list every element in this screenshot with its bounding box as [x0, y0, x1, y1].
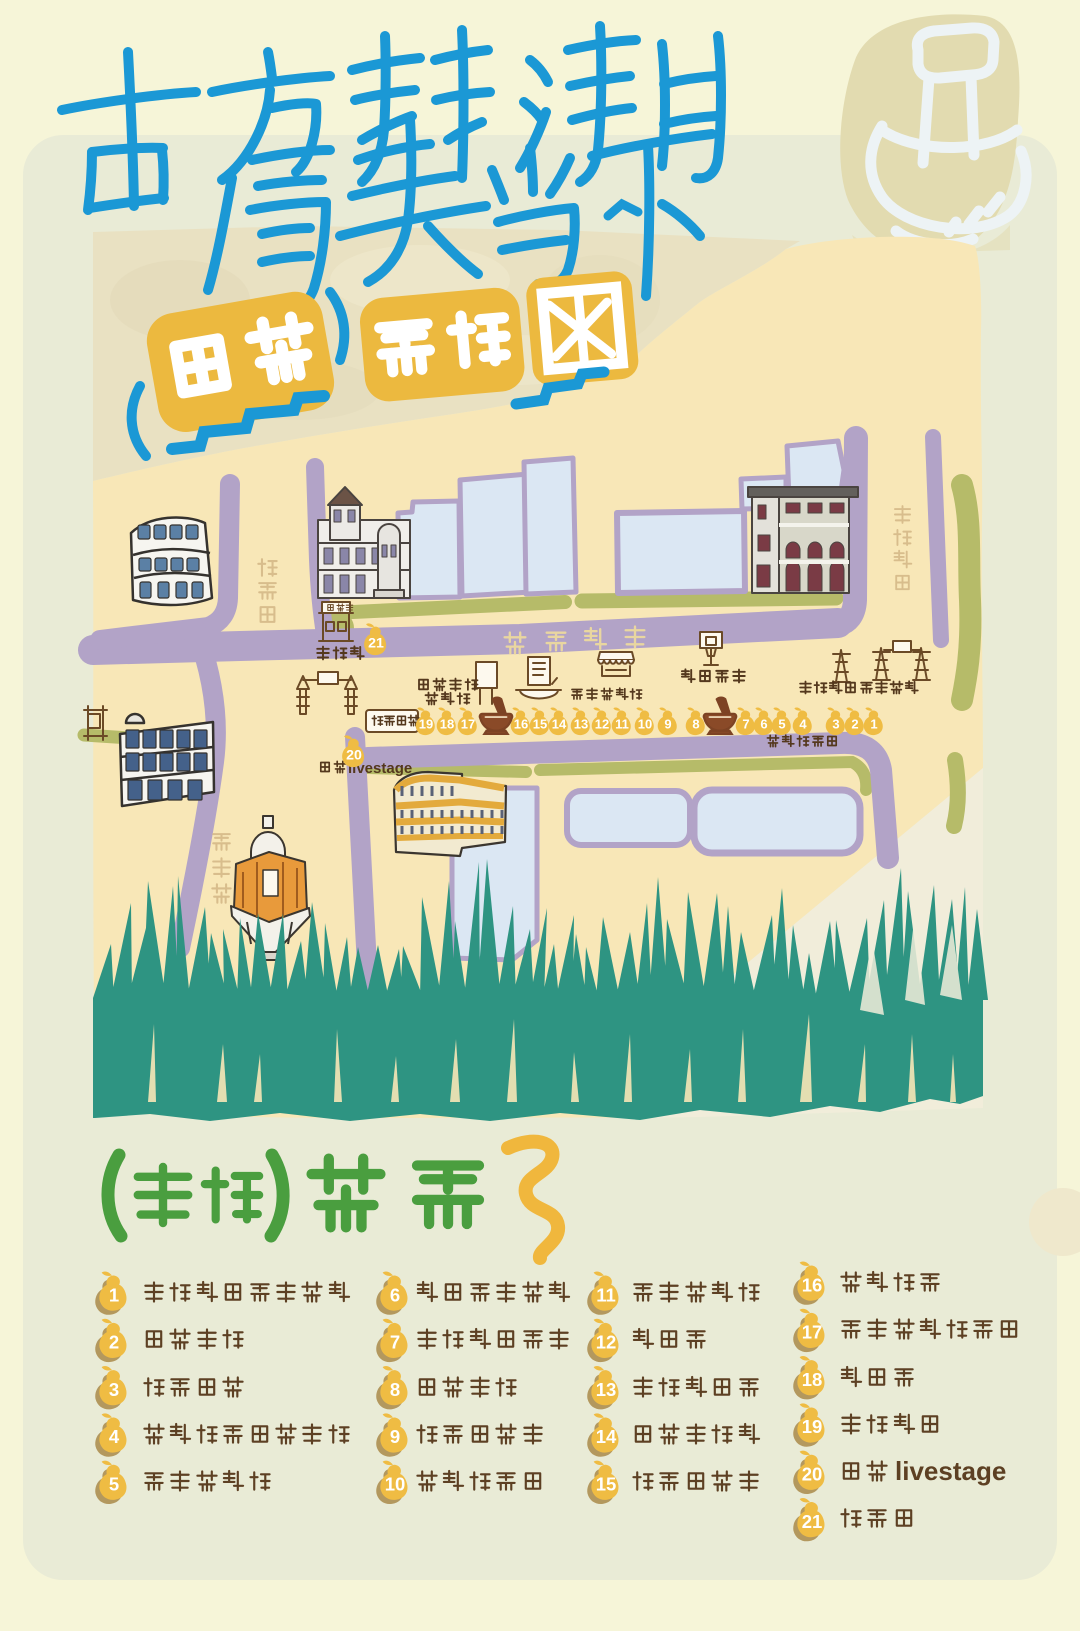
svg-text:17: 17 — [802, 1322, 823, 1343]
svg-text:16: 16 — [802, 1274, 823, 1295]
svg-text:10: 10 — [385, 1473, 406, 1494]
svg-text:13: 13 — [574, 716, 588, 731]
svg-text:livestage: livestage — [895, 1456, 1006, 1486]
svg-text:4: 4 — [799, 716, 807, 731]
svg-text:20: 20 — [346, 747, 362, 763]
svg-text:9: 9 — [664, 716, 671, 731]
svg-text:6: 6 — [390, 1284, 400, 1305]
svg-text:11: 11 — [615, 716, 629, 731]
svg-text:12: 12 — [595, 716, 609, 731]
svg-text:8: 8 — [390, 1379, 400, 1400]
svg-text:6: 6 — [760, 716, 767, 731]
svg-text:7: 7 — [390, 1332, 400, 1353]
svg-text:9: 9 — [390, 1426, 400, 1447]
svg-text:8: 8 — [692, 716, 699, 731]
svg-text:14: 14 — [596, 1426, 617, 1447]
svg-text:1: 1 — [870, 716, 877, 731]
svg-text:14: 14 — [552, 716, 567, 731]
svg-text:15: 15 — [533, 716, 547, 731]
svg-text:5: 5 — [778, 716, 785, 731]
svg-text:13: 13 — [596, 1379, 617, 1400]
svg-text:4: 4 — [109, 1426, 120, 1447]
svg-text:11: 11 — [596, 1284, 616, 1305]
svg-text:10: 10 — [638, 716, 652, 731]
svg-text:12: 12 — [596, 1332, 617, 1353]
svg-text:3: 3 — [109, 1379, 119, 1400]
svg-text:17: 17 — [461, 716, 475, 731]
svg-text:7: 7 — [742, 716, 749, 731]
svg-text:2: 2 — [851, 716, 858, 731]
svg-text:16: 16 — [514, 716, 528, 731]
svg-text:21: 21 — [802, 1511, 823, 1532]
svg-text:18: 18 — [440, 716, 454, 731]
svg-text:15: 15 — [596, 1473, 617, 1494]
svg-text:1: 1 — [109, 1284, 119, 1305]
svg-text:19: 19 — [419, 716, 433, 731]
svg-text:5: 5 — [109, 1473, 119, 1494]
svg-text:21: 21 — [368, 635, 384, 651]
svg-text:3: 3 — [832, 716, 839, 731]
svg-text:19: 19 — [802, 1416, 823, 1437]
svg-text:2: 2 — [109, 1332, 119, 1353]
svg-text:18: 18 — [802, 1369, 823, 1390]
svg-text:20: 20 — [802, 1463, 823, 1484]
